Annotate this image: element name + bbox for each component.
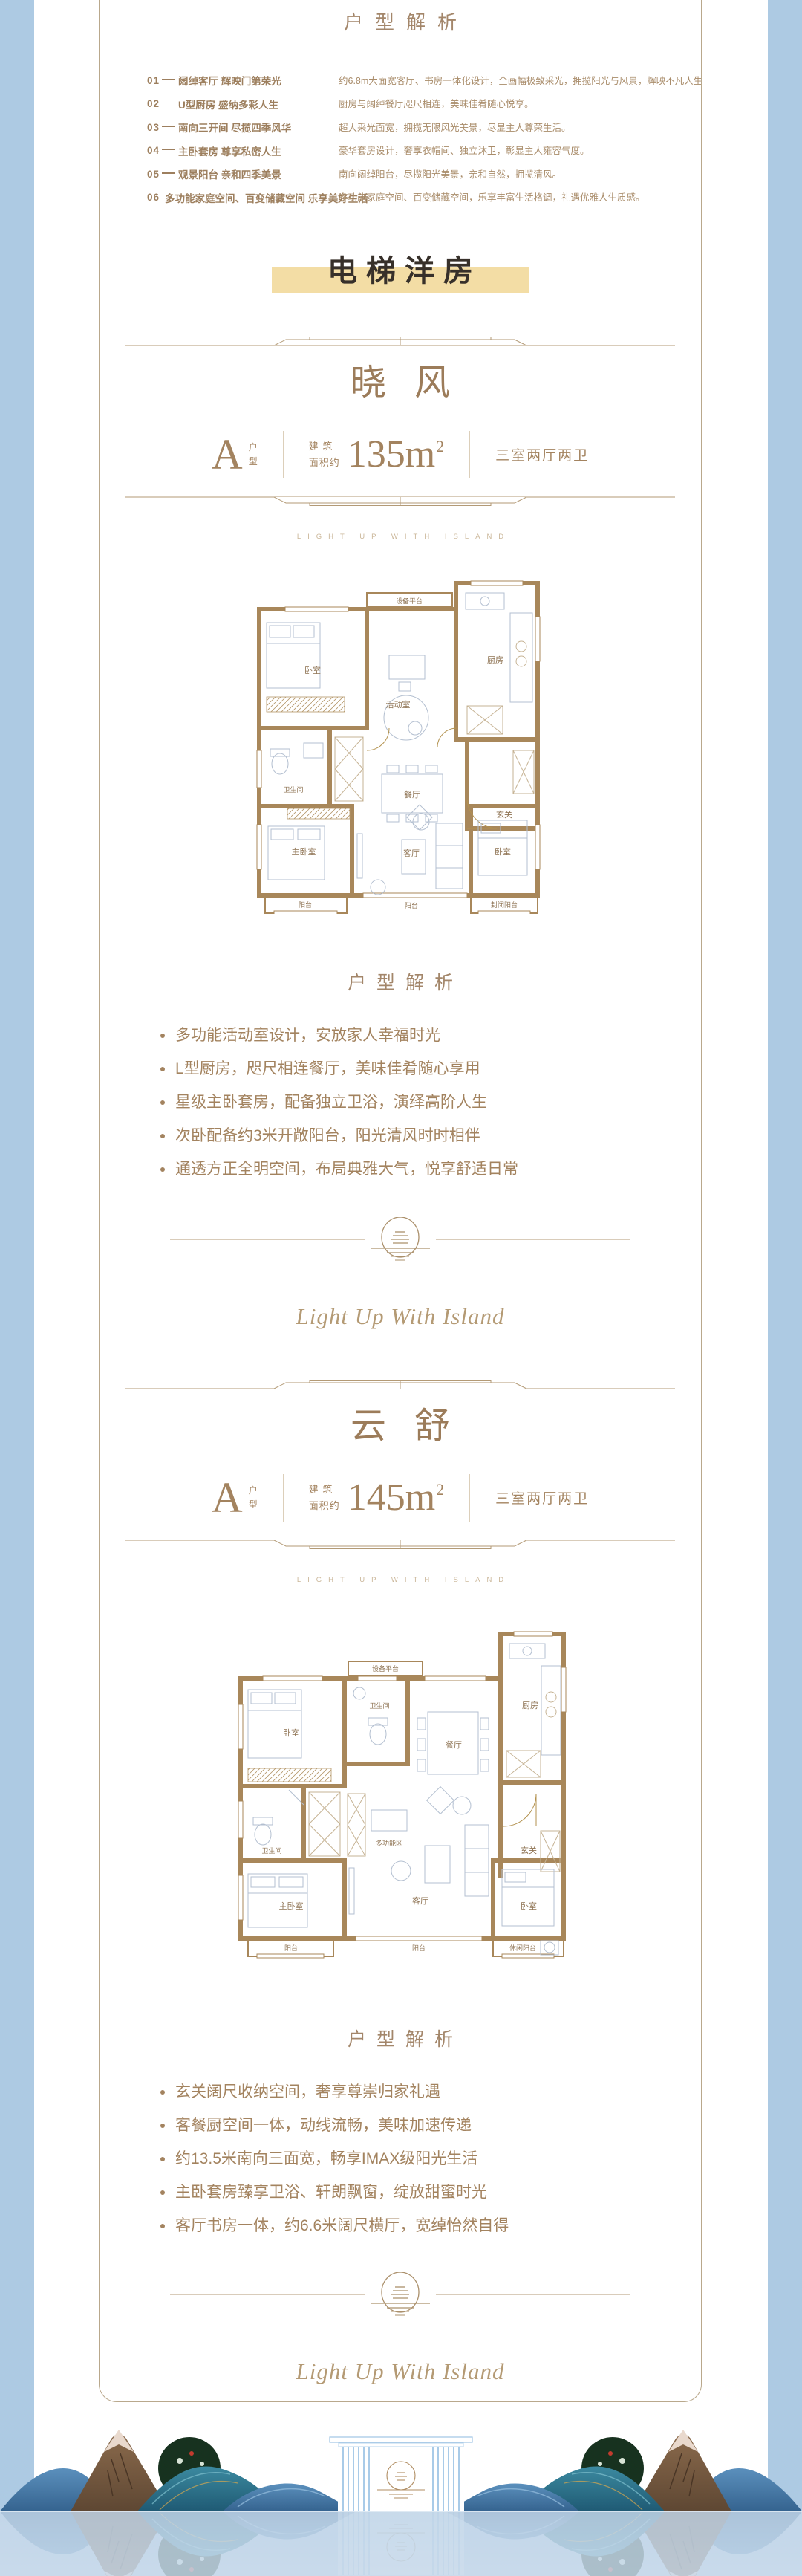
section-title-xiaofeng: 晓风 <box>100 361 701 406</box>
room-label-foyer: 玄关 <box>521 1845 537 1855</box>
area-prefix-line1: 建 筑 <box>309 1482 340 1498</box>
room-label-bedroom-right: 卧室 <box>521 1901 537 1911</box>
bullet-item: 主卧套房臻享卫浴、轩朗飘窗，绽放甜蜜时光 <box>159 2176 642 2209</box>
room-label-balcony-left: 阳台 <box>299 901 312 909</box>
tagline-caps: LIGHT UP WITH ISLAND <box>100 532 701 542</box>
list-item: 01阔绰客厅 辉映门第荣光 约6.8m大面宽客厅、书房一体化设计，全画幅极致采光… <box>147 73 671 88</box>
room-label-master: 主卧室 <box>279 1901 304 1911</box>
list-item: 05观景阳台 亲和四季美景 南向阔绰阳台，尽揽阳光美景，亲和自然，拥揽清风。 <box>147 166 671 182</box>
spec-divider <box>469 431 470 478</box>
area-prefix-line1: 建 筑 <box>309 438 340 455</box>
unit-spec-row: A 户 型 建 筑 面积约 145m2 三室两厅两卫 <box>100 1468 701 1528</box>
list-item: 04主卧套房 尊享私密人生 豪华套房设计，奢享衣帽间、独立沐卫，彰显主人雍容气度… <box>147 143 671 158</box>
section-title-yunshu: 云舒 <box>100 1404 701 1449</box>
room-label-balcony-enclosed: 封闭阳台 <box>491 901 518 909</box>
script-tagline: Light Up With Island <box>100 1300 701 1333</box>
area-prefix-line2: 面积约 <box>309 455 340 471</box>
room-label-foyer: 玄关 <box>496 809 512 820</box>
room-label-bath: 卫生间 <box>283 785 303 794</box>
item-title: 多功能家庭空间、百变储藏空间 乐享美好生活 <box>165 190 368 205</box>
room-label-balcony-center: 阳台 <box>405 901 418 909</box>
item-desc: 多功能家庭空间、百变储藏空间，乐享丰富生活格调，礼遇优雅人生质感。 <box>339 189 671 204</box>
room-label-platform: 设备平台 <box>372 1664 399 1673</box>
item-number: 02 <box>147 98 160 109</box>
room-label-bedroom-right: 卧室 <box>495 846 511 857</box>
room-label-living: 客厅 <box>412 1895 428 1906</box>
floorplan-svg-135: 设备平台 卧室 活动室 厨房 卫生间 餐厅 玄关 主卧室 阳台 客厅 阳台 卧室… <box>244 572 556 914</box>
unit-word-top: 户 <box>249 441 258 455</box>
area-prefix-line2: 面积约 <box>309 1498 340 1514</box>
area-sup: 2 <box>436 1480 444 1499</box>
feature-list: 01阔绰客厅 辉映门第荣光 约6.8m大面宽客厅、书房一体化设计，全画幅极致采光… <box>147 73 671 205</box>
room-label-kitchen: 厨房 <box>522 1701 538 1710</box>
unit-word-top: 户 <box>249 1484 258 1498</box>
item-desc: 超大采光面宽，拥揽无限风光美景，尽显主人尊荣生活。 <box>339 120 671 134</box>
room-label-bath-top: 卫生间 <box>369 1701 389 1710</box>
item-number: 01 <box>147 75 160 86</box>
item-number: 04 <box>147 145 160 156</box>
spec-divider <box>283 1474 284 1522</box>
unit-type: A 户 型 <box>212 1476 258 1519</box>
bullet-list: 多功能活动室设计，安放家人幸福时光 L型厨房，咫尺相连餐厅，美味佳肴随心享用 星… <box>159 1019 642 1186</box>
script-tagline: Light Up With Island <box>100 2355 701 2388</box>
spec-divider <box>469 1474 470 1522</box>
bullet-item: 通透方正全明空间，布局典雅大气，悦享舒适日常 <box>159 1152 642 1186</box>
item-number: 03 <box>147 122 160 133</box>
list-item: 06多功能家庭空间、百变储藏空间 乐享美好生活 多功能家庭空间、百变储藏空间，乐… <box>147 189 671 205</box>
eave-divider <box>125 1379 675 1391</box>
room-label-dining: 餐厅 <box>404 789 420 799</box>
right-blue-strip <box>768 0 802 2576</box>
bullet-item: 次卧配备约3米开敞阳台，阳光清风时时相伴 <box>159 1119 642 1152</box>
bullet-item: 客厅书房一体，约6.6米阔尺横厅，宽绰怡然自得 <box>159 2209 642 2242</box>
floorplan-yunshu: 设备平台 卧室 卫生间 餐厅 厨房 玄关 卫生间 主卧室 多功能区 客厅 阳台 … <box>100 1615 701 1976</box>
item-title: 南向三开间 尽揽四季风华 <box>178 120 291 134</box>
analysis-title: 户型解析 <box>100 2028 701 2053</box>
unit-letter: A <box>212 1476 243 1519</box>
dash-divider <box>162 172 175 174</box>
list-item: 03南向三开间 尽揽四季风华 超大采光面宽，拥揽无限风光美景，尽显主人尊荣生活。 <box>147 120 671 135</box>
unit-letter: A <box>212 433 243 476</box>
room-label-balcony-left: 阳台 <box>284 1944 298 1952</box>
bullet-item: 约13.5米南向三面宽，畅享IMAX级阳光生活 <box>159 2142 642 2176</box>
item-title: U型厨房 盛纳多彩人生 <box>178 97 278 111</box>
lantern-emblem-divider <box>148 2272 653 2320</box>
unit-area: 建 筑 面积约 145m2 <box>309 1479 444 1517</box>
eave-divider <box>125 1538 675 1550</box>
floorplan-xiaofeng: 设备平台 卧室 活动室 厨房 卫生间 餐厅 玄关 主卧室 阳台 客厅 阳台 卧室… <box>100 572 701 918</box>
page: 户型解析 01阔绰客厅 辉映门第荣光 约6.8m大面宽客厅、书房一体化设计，全画… <box>0 0 802 2576</box>
bullet-item: L型厨房，咫尺相连餐厅，美味佳肴随心享用 <box>159 1052 642 1086</box>
room-label-bedroom-top: 卧室 <box>304 665 321 675</box>
unit-word-bottom: 型 <box>249 1498 258 1512</box>
unit-rooms-text: 三室两厅两卫 <box>495 1487 589 1508</box>
floorplan-svg-145: 设备平台 卧室 卫生间 餐厅 厨房 玄关 卫生间 主卧室 多功能区 客厅 阳台 … <box>226 1615 575 1972</box>
unit-rooms-text: 三室两厅两卫 <box>495 444 589 464</box>
spec-divider <box>283 431 284 478</box>
eave-divider <box>125 336 675 348</box>
room-label-bedroom-top: 卧室 <box>283 1727 299 1738</box>
room-label-platform: 设备平台 <box>396 597 423 605</box>
content-card: 户型解析 01阔绰客厅 辉映门第荣光 约6.8m大面宽客厅、书房一体化设计，全画… <box>99 0 702 2402</box>
left-blue-strip <box>0 0 34 2576</box>
item-desc: 厨房与阔绰餐厅咫尺相连，美味佳肴随心悦享。 <box>339 96 671 110</box>
area-sup: 2 <box>436 437 444 455</box>
room-label-kitchen: 厨房 <box>487 655 503 665</box>
dash-divider <box>162 126 175 127</box>
room-label-dining: 餐厅 <box>446 1739 462 1750</box>
room-label-multi: 多功能区 <box>376 1839 402 1847</box>
bullet-list: 玄关阔尺收纳空间，奢享尊崇归家礼遇 客餐厨空间一体，动线流畅，美味加速传递 约1… <box>159 2075 642 2242</box>
item-title: 阔绰客厅 辉映门第荣光 <box>178 73 281 88</box>
room-label-activity: 活动室 <box>386 699 411 710</box>
room-label-living: 客厅 <box>403 848 420 858</box>
room-label-balcony-center: 阳台 <box>412 1944 426 1952</box>
dash-divider <box>162 103 175 104</box>
list-item: 02U型厨房 盛纳多彩人生 厨房与阔绰餐厅咫尺相连，美味佳肴随心悦享。 <box>147 96 671 111</box>
lantern-emblem-divider <box>148 1217 653 1265</box>
unit-area: 建 筑 面积约 135m2 <box>309 435 444 474</box>
item-number: 06 <box>147 192 160 203</box>
section-banner: 电梯洋房 <box>100 250 701 293</box>
dash-divider <box>162 149 175 151</box>
item-title: 观景阳台 亲和四季美景 <box>178 166 281 181</box>
tagline-caps: LIGHT UP WITH ISLAND <box>100 1575 701 1586</box>
room-label-bath-left: 卫生间 <box>261 1846 281 1855</box>
bullet-item: 多功能活动室设计，安放家人幸福时光 <box>159 1019 642 1052</box>
item-desc: 南向阔绰阳台，尽揽阳光美景，亲和自然，拥揽清风。 <box>339 166 671 181</box>
item-title: 主卧套房 尊享私密人生 <box>178 143 281 158</box>
bullet-item: 玄关阔尺收纳空间，奢享尊崇归家礼遇 <box>159 2075 642 2109</box>
area-value: 145m <box>348 1476 435 1519</box>
unit-type: A 户 型 <box>212 433 258 476</box>
unit-word-bottom: 型 <box>249 455 258 469</box>
bullet-item: 星级主卧套房，配备独立卫浴，演绎高阶人生 <box>159 1086 642 1119</box>
eave-divider <box>125 495 675 507</box>
analysis-title: 户型解析 <box>100 971 701 996</box>
room-label-balcony-leisure: 休闲阳台 <box>509 1944 536 1952</box>
area-value: 135m <box>348 433 435 476</box>
room-label-master: 主卧室 <box>292 846 316 857</box>
dash-divider <box>162 79 175 80</box>
unit-spec-row: A 户 型 建 筑 面积约 135m2 三室两厅两卫 <box>100 425 701 484</box>
page-title: 户型解析 <box>100 10 701 36</box>
item-number: 05 <box>147 169 160 180</box>
footer-mountain-artwork <box>0 2400 802 2576</box>
bullet-item: 客餐厨空间一体，动线流畅，美味加速传递 <box>159 2109 642 2142</box>
item-desc: 约6.8m大面宽客厅、书房一体化设计，全画幅极致采光，拥揽阳光与风景，辉映不凡人… <box>339 73 702 87</box>
banner-title: 电梯洋房 <box>100 250 701 293</box>
item-desc: 豪华套房设计，奢享衣帽间、独立沐卫，彰显主人雍容气度。 <box>339 143 671 157</box>
